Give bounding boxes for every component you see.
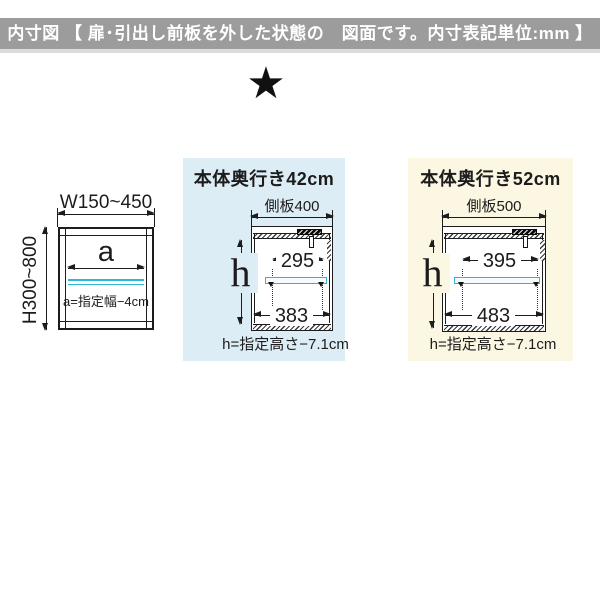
depth52-extension-line-left xyxy=(442,210,443,226)
header-title: 内寸図 【 扉･引出し前板を外した状態の 図面です。内寸表記単位:mm 】 xyxy=(0,18,600,49)
depth52-inner-width-value: 483 xyxy=(472,306,515,326)
depth52-side-panel-arrow xyxy=(442,217,546,218)
depth42-extension-line-right xyxy=(332,210,333,226)
depth42-hanging-rail xyxy=(297,229,322,236)
depth42-inner-width-value: 383 xyxy=(270,306,313,326)
depth42-panel: 本体奥行き42cm 側板400 295 383 h h=指定高さ−7.1cm xyxy=(183,158,345,361)
depth52-shelf-marker-left xyxy=(458,282,464,287)
depth52-height-formula: h=指定高さ−7.1cm xyxy=(418,333,568,354)
front-bottom-rail-line xyxy=(60,321,152,322)
front-inner-width-symbol: a xyxy=(60,238,152,267)
depth52-dotted-line-right xyxy=(537,269,538,310)
depth42-dotted-line-left xyxy=(272,269,273,310)
screenshot-stage: 内寸図 【 扉･引出し前板を外した状態の 図面です。内寸表記単位:mm 】 ★ … xyxy=(0,0,600,600)
depth52-shelf-bar xyxy=(454,277,540,284)
front-shelf-line-2 xyxy=(68,284,144,286)
depth42-back-rail-hatch xyxy=(327,240,332,261)
depth52-rail-pin xyxy=(523,236,528,248)
depth52-title: 本体奥行き52cm xyxy=(408,165,573,191)
depth52-height-symbol: h xyxy=(415,253,450,293)
front-width-dimension-arrow xyxy=(58,214,154,215)
depth52-section-box: 395 483 xyxy=(442,226,546,332)
front-shelf-line-1 xyxy=(68,279,144,281)
front-inner-width-arrow xyxy=(68,268,144,269)
depth42-dotted-line-right xyxy=(322,269,323,310)
front-cabinet-box: a a=指定幅−4cm xyxy=(58,227,154,330)
depth42-shelf-marker-left xyxy=(268,282,274,287)
depth42-extension-line-left xyxy=(251,210,252,226)
depth42-rail-pin xyxy=(309,236,314,248)
depth42-side-panel-label: 側板400 xyxy=(251,195,333,216)
front-width-formula: a=指定幅−4cm xyxy=(56,291,156,310)
front-height-range-label: H300~800 xyxy=(21,221,41,339)
depth52-back-rail-hatch xyxy=(540,240,545,261)
depth42-side-panel-arrow xyxy=(251,217,333,218)
depth52-side-panel-label: 側板500 xyxy=(442,195,546,216)
depth52-extension-line-right xyxy=(545,210,546,226)
depth52-dotted-line-left xyxy=(462,269,463,310)
depth52-shelf-marker-right xyxy=(533,282,539,287)
star-icon: ★ xyxy=(240,62,292,106)
header-shadow xyxy=(0,49,600,53)
depth42-hole-pitch-value: 295 xyxy=(276,251,319,271)
depth52-panel: 本体奥行き52cm 側板500 395 483 h h=指定高さ−7.1cm xyxy=(408,158,573,361)
depth42-title: 本体奥行き42cm xyxy=(183,165,345,191)
depth52-hole-pitch-value: 395 xyxy=(478,251,521,271)
depth42-height-formula: h=指定高さ−7.1cm xyxy=(218,333,353,354)
front-height-dimension-arrow xyxy=(46,227,47,330)
front-width-extension-line-right xyxy=(154,208,155,227)
depth42-height-symbol: h xyxy=(223,253,258,293)
depth42-section-box: 295 383 xyxy=(251,226,333,331)
depth42-shelf-marker-right xyxy=(318,282,324,287)
front-width-extension-line-left xyxy=(57,208,58,227)
depth52-hanging-rail xyxy=(512,229,537,236)
